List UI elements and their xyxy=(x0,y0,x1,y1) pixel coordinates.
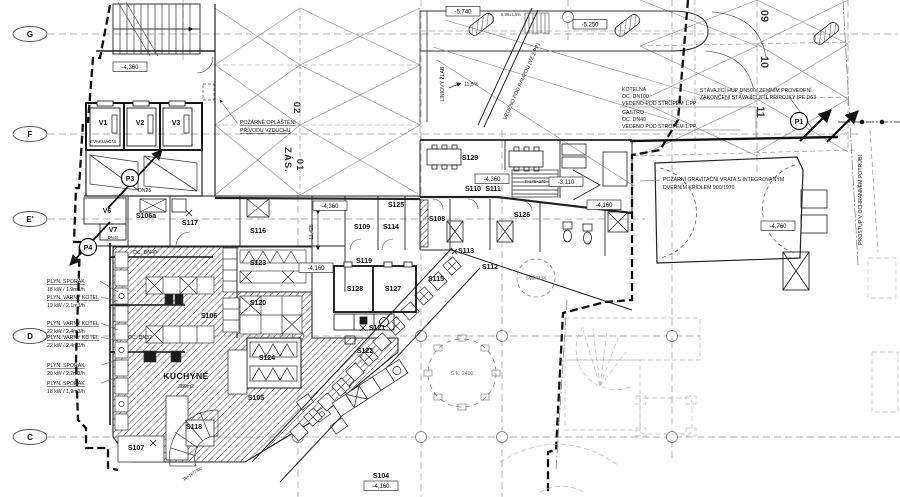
gas-ann-6-name: PLYN. SPORÁK xyxy=(47,380,85,387)
ramp-pads xyxy=(467,11,841,46)
room-label-s109: S109 xyxy=(354,224,370,231)
gas-ann-3-name: PLYN. VARNÝ KOTEL xyxy=(47,320,99,327)
grid-col-10: 10 xyxy=(758,56,770,68)
storage-bays-left xyxy=(215,8,420,195)
level-4760: -4,760 xyxy=(769,224,787,230)
level-4160-c: -4,160 xyxy=(372,484,390,490)
room-label-s111: S111 xyxy=(485,186,501,193)
room-label-s113: S113 xyxy=(458,248,474,255)
room-label-s117: S117 xyxy=(182,220,198,227)
gas-ann-1-name: PLYN. SPORÁK xyxy=(47,278,85,285)
grid-row-f: F xyxy=(28,130,33,139)
grid-row-g: G xyxy=(27,30,33,39)
pipe-dn40-label: DN40 xyxy=(108,235,119,240)
vertical-dimension: 11,425 xyxy=(309,214,318,250)
room-label-v7: V7 xyxy=(109,227,118,234)
gas-ann-5-value: 20 kW / 2,2m3/h xyxy=(47,371,85,377)
room-label-s110: S110 xyxy=(465,186,481,193)
room-label-v1: V1 xyxy=(99,120,108,127)
zone-label-02: 02 xyxy=(291,102,302,115)
room-s124-shelving xyxy=(247,338,301,388)
pipe-dn25-label: DN25 xyxy=(138,188,151,194)
room-label-s107: S107 xyxy=(128,445,144,452)
gas-ann-4-name: PLYN. VARNÝ KOTEL xyxy=(47,334,99,341)
gate-line2: DVEŘNÍM KŘÍDLEM 900/1970 xyxy=(663,183,735,191)
grid-col-09: 09 xyxy=(758,10,770,22)
gas-ann-2-value: 19 kW / 2,1m3/h xyxy=(47,303,85,309)
room-label-s115: S115 xyxy=(428,276,444,283)
ramp-slope-label: 6,98±1,5% xyxy=(501,12,521,17)
room-label-s121: S121 xyxy=(369,325,385,332)
room-label-v2: V2 xyxy=(136,120,145,127)
level-4360-c: -4,360 xyxy=(321,204,339,210)
gate-annotation: POŽÁRNÍ GRAVITAČNÍ VRATA S INTEGROVANÝM … xyxy=(640,175,784,191)
level-5250: -5,250 xyxy=(581,23,599,29)
marker-p1: P1 xyxy=(791,113,808,130)
slope-arrow xyxy=(449,83,461,88)
marker-p4: P4 xyxy=(70,222,110,265)
evacuation-label: EVAKUAČNÍ xyxy=(90,138,117,144)
room-label-s108: S108 xyxy=(429,216,445,223)
gastro-line3: VEDENO POD STROPEM 1.PP xyxy=(622,124,697,130)
room-label-s106: S106 xyxy=(201,313,217,320)
kotelna-line3: VEDENO POD STROPEM 1.PP xyxy=(622,101,697,107)
room-label-s120: S120 xyxy=(250,300,266,307)
kotelna-line2: OC. DN100 xyxy=(622,94,649,100)
pipe-oc-dn32-label: OC. DN32 xyxy=(128,335,152,341)
slope-label: 11,5% xyxy=(464,82,479,88)
room-label-s118: S118 xyxy=(186,424,202,431)
room-label-s125: S125 xyxy=(388,202,404,209)
room-label-s129: S129 xyxy=(462,155,478,162)
linear-drain-label: LINIOVÝ ŽLAB xyxy=(438,66,446,101)
gas-ann-5-name: PLYN. SPORÁK xyxy=(47,362,85,369)
level-5740: -5,740 xyxy=(454,10,472,16)
room-label-s114: S114 xyxy=(383,224,399,231)
gastro-line1: GASTRO xyxy=(622,110,644,116)
room-label-kitchen: KUCHYNĚ xyxy=(163,370,209,381)
sleeve-annotation: PROSTUP V OCHRANNÉM POTRUBÍ xyxy=(857,155,864,245)
room-label-v6: V6 xyxy=(103,208,112,215)
fan-stair-dim: 18×167/300 xyxy=(181,465,203,481)
gas-appliance-annotations: PLYN. SPORÁK 18 kW / 1,9m3/h PLYN. VARNÝ… xyxy=(47,278,118,395)
skylight-label: SVĚTLÍK xyxy=(525,274,547,282)
duct-annotation: POŽÁRNĚ OPLÁŠTĚNÍ PŘÍVODU VZDUCHU xyxy=(220,100,296,134)
grid-row-d: D xyxy=(27,332,33,341)
hup-line2: ZAKONČENÍ STÁVAJÍCÍ STL PŘÍPOJKY IPE D63 xyxy=(700,93,816,101)
gas-ann-1-value: 18 kW / 1,9m3/h xyxy=(47,287,85,293)
duct-line1: POŽÁRNĚ OPLÁŠTĚNÍ xyxy=(240,118,296,126)
floor-plan-canvas: G F E' D C 09 10 11 ZÁS. 01 02 xyxy=(0,0,900,497)
room-label-s128: S128 xyxy=(347,286,363,293)
room-label-s124: S124 xyxy=(259,355,275,362)
gas-ann-2-name: PLYN. VARNÝ KOTEL xyxy=(47,294,99,301)
room-label-s112: S112 xyxy=(482,264,498,271)
room-label-s127: S127 xyxy=(385,286,401,293)
storage-bays-right xyxy=(634,0,855,156)
gas-ann-4-value: 22 kW / 2,4m3/h xyxy=(47,343,85,349)
floor-plan-drawing: G F E' D C 09 10 11 ZÁS. 01 02 xyxy=(0,0,900,497)
grid-row-e: E' xyxy=(26,215,33,224)
level-3110: -3,110 xyxy=(558,180,575,186)
level-4160-a: -4,160 xyxy=(595,203,613,209)
zone-label-zas: ZÁS. xyxy=(282,147,293,173)
grid-row-c: C xyxy=(27,433,33,442)
gas-ann-6-value: 18 kW / 1,9m3/h xyxy=(47,389,85,395)
zone-label-01: 01 xyxy=(294,159,305,172)
hup-line1: STÁVAJÍCÍ HUP DN50 V ZEMNÍM PROVEDENÍ xyxy=(700,87,812,94)
gastro-line2: OC. DN40 xyxy=(622,117,646,123)
sk2400-label: S.K. 2400 xyxy=(451,371,474,377)
marker-p3-label: P3 xyxy=(126,176,135,183)
stair-top-left xyxy=(113,2,200,56)
skylight-circle: SVĚTLÍK xyxy=(517,259,555,297)
sk2400-circle: S.K. 2400 xyxy=(424,335,500,410)
kitchen-area-label: 380m2 xyxy=(178,384,194,390)
room-label-v3: V3 xyxy=(172,120,181,127)
kotelna-line1: KOTELNA xyxy=(622,87,647,93)
room-label-s106a: S106a xyxy=(136,213,156,220)
level-4360-b: -4,360 xyxy=(483,177,501,183)
under-ramp-label: VEDENO POD RAMPOU (VZ 2.PP) xyxy=(502,42,541,121)
gate-line1: POŽÁRNÍ GRAVITAČNÍ VRATA S INTEGROVANÝM xyxy=(663,175,784,183)
room-label-s126: S126 xyxy=(514,212,530,219)
level-4360-a: -4,360 xyxy=(121,65,139,71)
room-label-s116: S116 xyxy=(250,228,266,235)
room-label-s104: S104 xyxy=(373,473,389,480)
stair-dim-label: 7×175×270 xyxy=(524,179,546,184)
tables-s129 xyxy=(427,145,543,171)
room-label-s105: S105 xyxy=(248,395,264,402)
pipe-oc-dn40-label: OC. DN40 xyxy=(133,250,157,256)
room-label-s122: S122 xyxy=(357,348,373,355)
gastro-annotation: GASTRO OC. DN40 VEDENO POD STROPEM 1.PP xyxy=(620,107,756,137)
dim-11425-label: 11,425 xyxy=(309,224,315,240)
right-building xyxy=(655,0,878,290)
marker-p4-label: P4 xyxy=(84,245,93,252)
marker-p1-label: P1 xyxy=(795,119,804,126)
level-4160-b: -4,160 xyxy=(307,266,325,272)
hup-annotation: STÁVAJÍCÍ HUP DN50 V ZEMNÍM PROVEDENÍ ZA… xyxy=(700,87,816,101)
duct-line2: PŘÍVODU VZDUCHU xyxy=(240,126,291,134)
room-label-s119: S119 xyxy=(356,258,372,265)
room-label-s123: S123 xyxy=(250,260,266,267)
